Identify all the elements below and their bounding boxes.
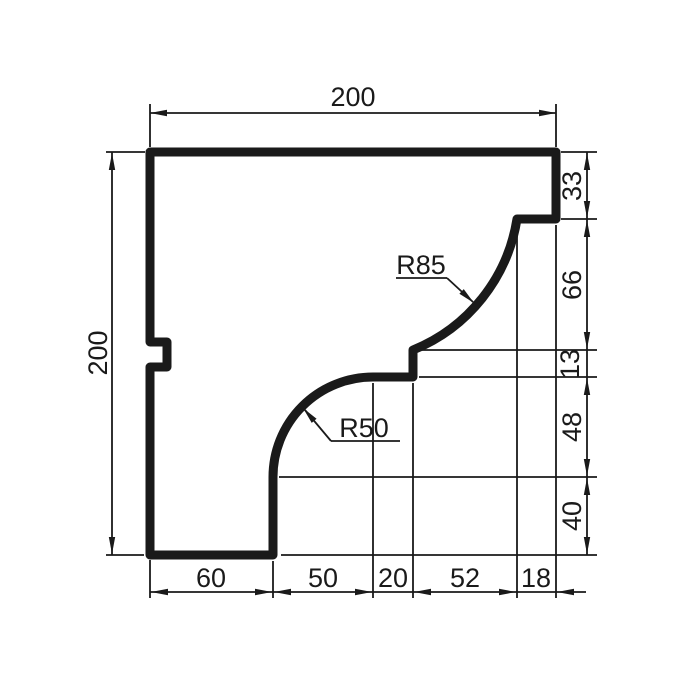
dim-label-bottom-60: 60 — [196, 563, 226, 593]
leader-line-r85 — [447, 278, 473, 302]
dim-label-right-48: 48 — [557, 412, 587, 442]
arrowhead-right-33-bottom — [584, 201, 590, 218]
arrowhead-bottom-60-right — [255, 589, 272, 595]
extension-lines — [106, 104, 597, 598]
dim-label-right-40: 40 — [557, 501, 587, 531]
dim-label-top-200: 200 — [330, 82, 375, 112]
arrowhead-bottom-50-right — [355, 589, 372, 595]
arrowhead-bottom-52-right — [499, 589, 516, 595]
dim-label-right-33: 33 — [557, 171, 587, 201]
drawing-canvas: 200 200 33 66 13 48 40 60 50 20 52 18 R8… — [0, 0, 686, 686]
arrowhead-right-48-bottom — [584, 459, 590, 476]
dim-label-bottom-52: 52 — [450, 563, 480, 593]
arrowhead-right-40-top — [584, 478, 590, 495]
arrowhead-left-top — [109, 153, 115, 170]
dim-label-bottom-18: 18 — [521, 563, 551, 593]
dim-label-right-13: 13 — [555, 349, 585, 379]
arrowhead-bottom-50-left — [274, 589, 291, 595]
molding-profile-outline — [150, 152, 556, 555]
arrowhead-left-bottom — [109, 537, 115, 554]
leader-line-r50 — [305, 410, 331, 441]
radius-label-r85: R85 — [396, 250, 446, 280]
dim-label-bottom-20: 20 — [378, 563, 408, 593]
arrowhead-bottom-60-left — [151, 589, 168, 595]
arrowhead-right-66-bottom — [584, 332, 590, 349]
dim-label-left-200: 200 — [83, 330, 113, 375]
arrowhead-bottom-52-left — [414, 589, 431, 595]
dimension-lines — [112, 113, 587, 592]
arrowhead-top-right — [539, 110, 556, 116]
technical-drawing: 200 200 33 66 13 48 40 60 50 20 52 18 R8… — [0, 0, 686, 686]
radius-label-r50: R50 — [339, 413, 389, 443]
arrowhead-right-40-bottom — [584, 537, 590, 554]
arrowhead-right-33-top — [584, 153, 590, 170]
arrowheads — [109, 110, 590, 595]
dim-label-right-66: 66 — [557, 270, 587, 300]
arrowhead-right-48-top — [584, 378, 590, 395]
arrowhead-right-66-top — [584, 220, 590, 237]
dim-label-bottom-50: 50 — [308, 563, 338, 593]
radius-leaders — [305, 278, 473, 441]
arrowhead-top-left — [150, 110, 167, 116]
arrowhead-bottom-18-right — [557, 589, 574, 595]
